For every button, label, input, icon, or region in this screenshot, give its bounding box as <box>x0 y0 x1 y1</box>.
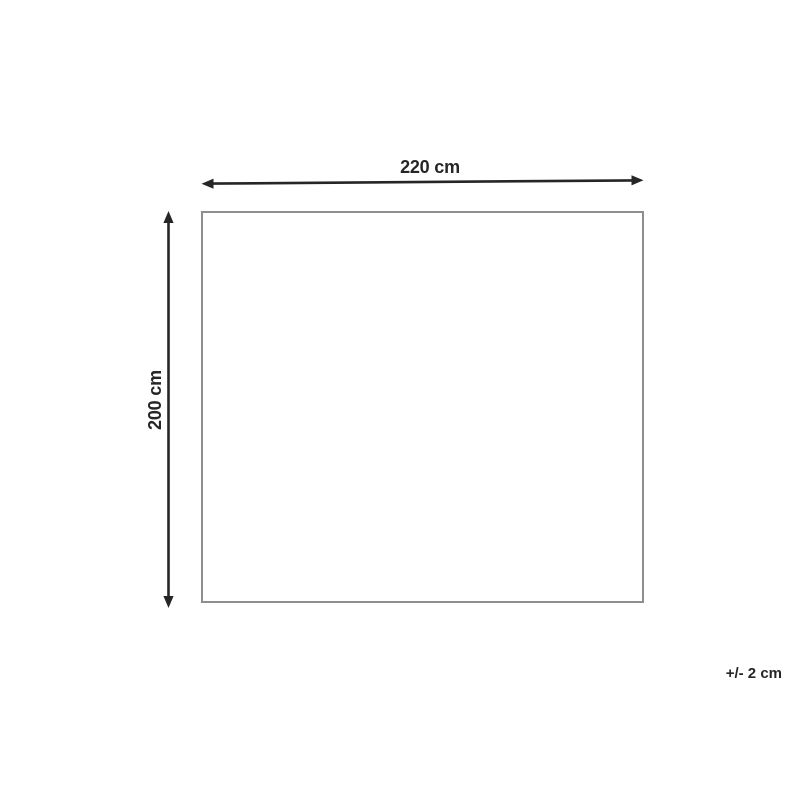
tolerance-label: +/- 2 cm <box>662 665 782 682</box>
dimension-diagram: 220 cm 200 cm +/- 2 cm <box>0 0 800 800</box>
height-dimension-label: 200 cm <box>145 340 163 460</box>
width-arrowhead-right-icon <box>632 175 644 185</box>
height-arrowhead-bottom-icon <box>163 596 173 608</box>
width-arrow-line <box>211 180 634 183</box>
width-dimension-label: 220 cm <box>330 157 530 178</box>
height-arrowhead-top-icon <box>163 211 173 223</box>
width-arrowhead-left-icon <box>202 179 214 189</box>
